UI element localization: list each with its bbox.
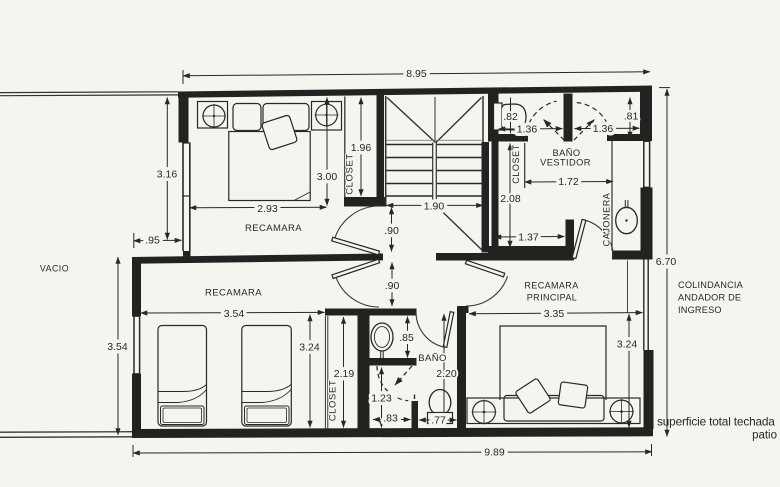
svg-text:3.00: 3.00: [317, 171, 338, 183]
svg-text:.82: .82: [503, 111, 518, 123]
svg-text:ANDADOR DE: ANDADOR DE: [678, 293, 741, 303]
svg-text:RECAMARA: RECAMARA: [205, 288, 262, 299]
svg-text:.83: .83: [383, 413, 398, 425]
svg-text:.90: .90: [384, 225, 399, 237]
svg-text:1.37: 1.37: [518, 232, 539, 244]
svg-text:.85: .85: [399, 332, 414, 344]
svg-text:.95: .95: [145, 235, 160, 247]
svg-text:VACIO: VACIO: [40, 264, 69, 274]
svg-text:RECAMARA: RECAMARA: [524, 281, 578, 291]
svg-text:INGRESO: INGRESO: [678, 305, 722, 315]
svg-text:3.24: 3.24: [617, 339, 638, 351]
svg-text:.90: .90: [385, 280, 400, 292]
svg-text:PRINCIPAL: PRINCIPAL: [527, 293, 577, 303]
svg-text:VESTIDOR: VESTIDOR: [540, 158, 591, 168]
svg-text:1.36: 1.36: [593, 123, 614, 135]
svg-text:CLOSET: CLOSET: [345, 153, 356, 195]
svg-text:1.90: 1.90: [424, 201, 445, 213]
svg-text:1.72: 1.72: [558, 176, 579, 188]
svg-text:BAÑO: BAÑO: [553, 148, 581, 158]
svg-text:2.19: 2.19: [334, 368, 355, 380]
svg-text:BAÑO: BAÑO: [418, 353, 447, 364]
svg-text:3.24: 3.24: [299, 342, 320, 354]
svg-text:3.35: 3.35: [544, 308, 565, 320]
svg-text:3.16: 3.16: [157, 169, 178, 181]
svg-text:.77: .77: [431, 415, 446, 427]
svg-text:9.89: 9.89: [484, 447, 505, 459]
svg-text:2.08: 2.08: [500, 193, 521, 205]
svg-text:3.54: 3.54: [224, 308, 245, 320]
svg-text:superficie total techada: superficie total techada: [657, 415, 775, 429]
svg-text:CLOSET: CLOSET: [328, 380, 339, 422]
svg-text:1.36: 1.36: [517, 124, 538, 136]
svg-text:3.54: 3.54: [107, 341, 128, 353]
svg-text:CAJONERA: CAJONERA: [602, 193, 612, 247]
svg-text:6.70: 6.70: [656, 256, 677, 268]
svg-text:2.93: 2.93: [257, 203, 278, 215]
svg-text:patio: patio: [752, 430, 777, 442]
svg-text:COLINDANCIA: COLINDANCIA: [678, 280, 744, 290]
svg-text:1.96: 1.96: [351, 142, 372, 154]
svg-text:RECAMARA: RECAMARA: [245, 223, 302, 234]
svg-text:.81: .81: [624, 111, 639, 123]
svg-text:CLOSET: CLOSET: [511, 144, 521, 184]
svg-text:8.95: 8.95: [406, 68, 427, 80]
svg-text:2.20: 2.20: [436, 368, 457, 380]
svg-text:1.23: 1.23: [371, 393, 392, 405]
